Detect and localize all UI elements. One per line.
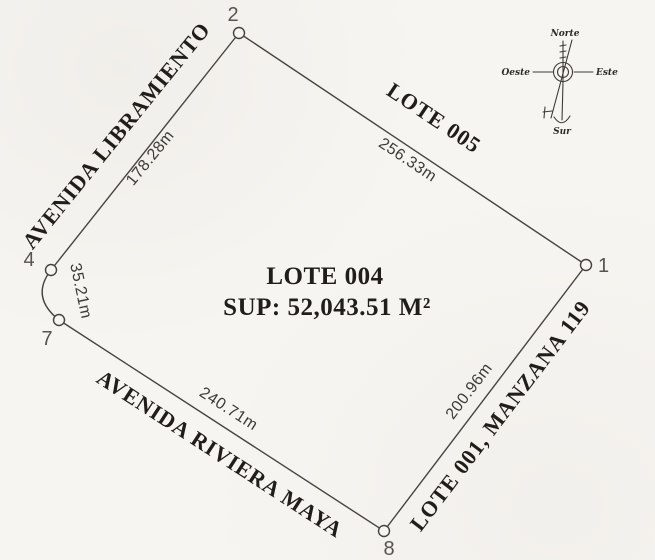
street-label-avenida-libramiento: AVENIDA LIBRAMIENTO: [17, 17, 215, 254]
vertex-marker-2: [234, 28, 245, 39]
vertex-label-7: 7: [41, 328, 52, 350]
compass-shaft-tick-2: [560, 51, 566, 52]
vertex-marker-1: [581, 260, 592, 271]
vertex-label-4: 4: [23, 249, 34, 271]
measurement-west-arc: 35.21m: [66, 262, 94, 321]
vertex-marker-4: [46, 265, 57, 276]
vertex-marker-7: [54, 315, 65, 326]
plot-drawing: 2 1 4 7 8 AVENIDA LIBRAMIENTO LOTE 005 L…: [0, 0, 655, 560]
vertex-label-8: 8: [383, 538, 394, 560]
compass-flag-tick-vertical: [544, 107, 545, 118]
vertex-label-2: 2: [227, 4, 238, 26]
lot-surface-area: SUP: 52,043.51 M²: [223, 294, 431, 321]
compass-label-north: Norte: [550, 29, 580, 39]
compass-label-west: Oeste: [501, 68, 530, 78]
street-label-avenida-riviera-maya: AVENIDA RIVIERA MAYA: [92, 365, 347, 543]
compass-south-shaft: [562, 82, 563, 120]
compass-shaft-tick-3: [560, 57, 566, 58]
measurement-southwest: 240.71m: [196, 384, 260, 434]
edge-southwest: [59, 320, 384, 531]
lot-name: LOTE 004: [266, 263, 383, 290]
edge-west-arc: [42, 270, 59, 320]
vertex-label-1: 1: [598, 255, 609, 277]
compass-label-east: Este: [595, 68, 618, 78]
vertex-marker-8: [379, 526, 390, 537]
compass-shaft-tick-1: [560, 45, 566, 46]
edge-northeast: [239, 33, 586, 265]
survey-plan-page: 2 1 4 7 8 AVENIDA LIBRAMIENTO LOTE 005 L…: [0, 0, 655, 560]
neighbor-label-lote-001-manzana-119: LOTE 001, MANZANA 119: [405, 295, 596, 535]
compass-label-south: Sur: [553, 127, 572, 137]
compass-rose: Norte Sur Oeste Este: [501, 29, 618, 137]
measurement-northwest: 178.28m: [123, 127, 178, 189]
parcel-info: LOTE 004 SUP: 52,043.51 M²: [223, 263, 431, 321]
